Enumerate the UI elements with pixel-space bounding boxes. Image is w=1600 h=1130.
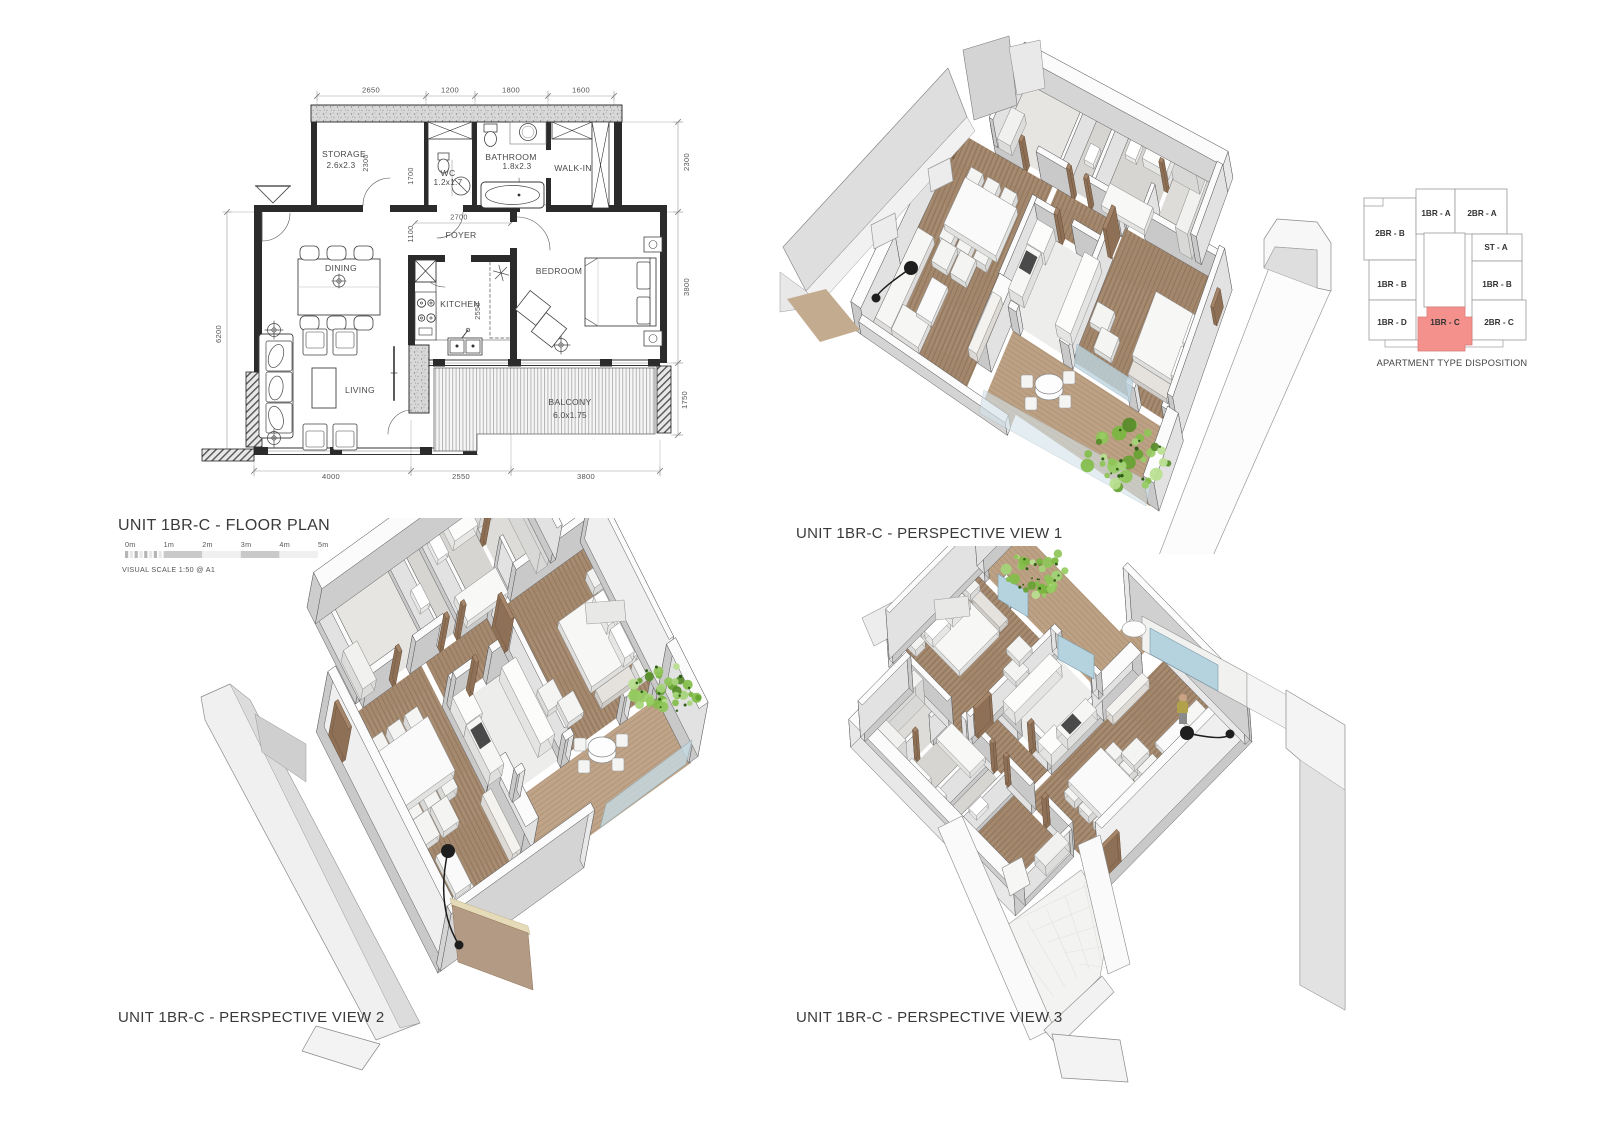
svg-text:2BR - A: 2BR - A [1467,209,1496,218]
svg-text:1.2x1.7: 1.2x1.7 [434,178,463,187]
svg-text:0m: 0m [125,540,136,549]
svg-text:3m: 3m [241,540,252,549]
svg-text:6.0x1.75: 6.0x1.75 [553,411,587,420]
svg-text:2300: 2300 [682,153,691,171]
svg-text:1600: 1600 [572,86,590,95]
svg-text:3800: 3800 [682,278,691,296]
svg-text:2650: 2650 [362,86,380,95]
svg-text:1800: 1800 [502,86,520,95]
svg-text:WC: WC [441,168,456,178]
svg-text:2BR - B: 2BR - B [1375,229,1405,238]
svg-text:UNIT 1BR-C - FLOOR PLAN: UNIT 1BR-C - FLOOR PLAN [118,517,330,534]
svg-text:1750: 1750 [680,391,689,409]
svg-text:1100: 1100 [406,226,415,243]
svg-text:2m: 2m [202,540,213,549]
svg-text:1BR - C: 1BR - C [1430,318,1460,327]
svg-text:KITCHEN: KITCHEN [440,299,480,309]
svg-text:UNIT 1BR-C - PERSPECTIVE VIEW: UNIT 1BR-C - PERSPECTIVE VIEW 3 [796,1009,1063,1026]
svg-text:2.6x2.3: 2.6x2.3 [327,161,356,170]
svg-text:LIVING: LIVING [345,385,375,395]
svg-text:4000: 4000 [322,472,340,481]
svg-text:1BR - A: 1BR - A [1421,209,1450,218]
svg-text:STORAGE: STORAGE [322,149,366,159]
svg-text:WALK-IN: WALK-IN [554,163,592,173]
svg-text:DINING: DINING [325,263,357,273]
svg-text:4m: 4m [279,540,290,549]
svg-text:1.8x2.3: 1.8x2.3 [503,162,532,171]
svg-text:2BR - C: 2BR - C [1484,318,1514,327]
svg-text:1200: 1200 [441,86,459,95]
svg-text:5m: 5m [318,540,329,549]
svg-text:BATHROOM: BATHROOM [485,152,536,162]
svg-text:VISUAL SCALE 1:50 @ A1: VISUAL SCALE 1:50 @ A1 [122,565,215,574]
svg-text:ST - A: ST - A [1484,243,1507,252]
svg-text:1BR - B: 1BR - B [1377,280,1407,289]
svg-text:APARTMENT TYPE DISPOSITION: APARTMENT TYPE DISPOSITION [1377,358,1528,368]
svg-text:1BR - D: 1BR - D [1377,318,1407,327]
svg-text:2700: 2700 [450,213,467,222]
svg-text:1BR - B: 1BR - B [1482,280,1512,289]
svg-text:UNIT 1BR-C - PERSPECTIVE VIEW: UNIT 1BR-C - PERSPECTIVE VIEW 2 [118,1009,385,1026]
svg-text:6200: 6200 [214,325,223,343]
svg-text:FOYER: FOYER [445,230,476,240]
svg-text:3800: 3800 [577,472,595,481]
svg-text:UNIT 1BR-C - PERSPECTIVE VIEW: UNIT 1BR-C - PERSPECTIVE VIEW 1 [796,525,1063,542]
svg-text:1m: 1m [164,540,175,549]
svg-text:BEDROOM: BEDROOM [536,266,583,276]
svg-text:BALCONY: BALCONY [548,397,591,407]
svg-text:1700: 1700 [406,167,415,184]
svg-text:2550: 2550 [452,472,470,481]
